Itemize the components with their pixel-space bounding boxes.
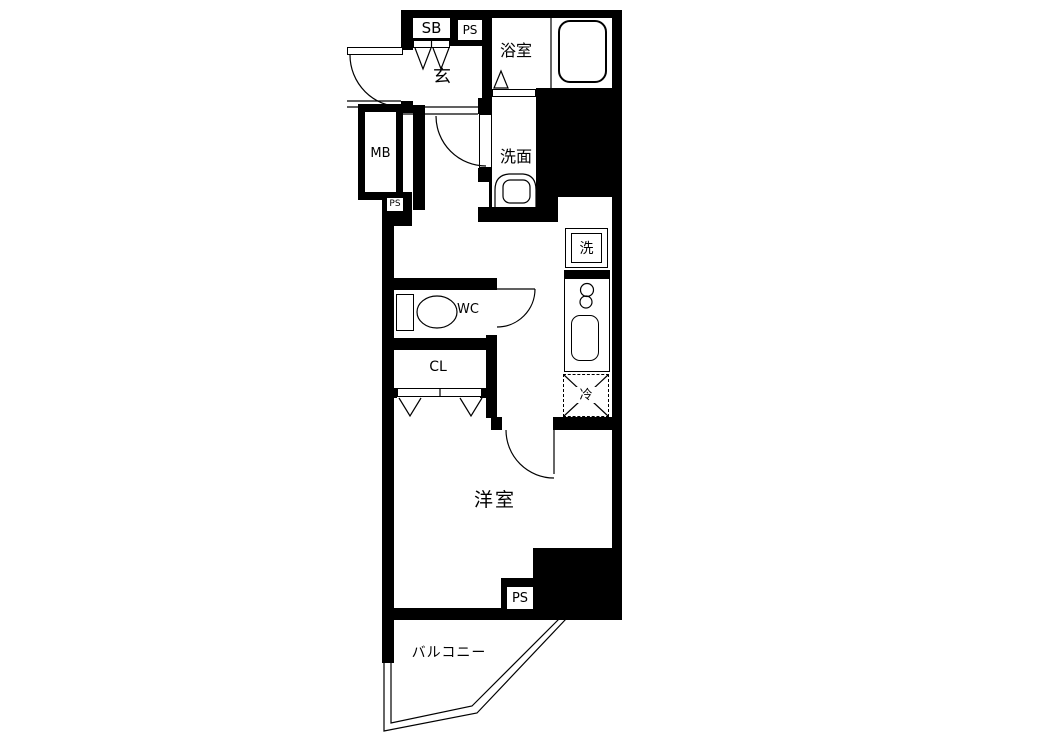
- wall-balcony-stub: [382, 620, 394, 663]
- bathroom-folding-door-icon: [494, 71, 508, 88]
- wall-washroom-south: [478, 207, 550, 222]
- kitchen-sink: [571, 315, 599, 361]
- room-label-wc: WC: [454, 301, 482, 317]
- meter-box-label: MB: [363, 145, 398, 161]
- wall-right: [612, 10, 622, 548]
- bathroom-door-track: [492, 89, 536, 97]
- closet-track-stub-left: [388, 388, 397, 398]
- room-label-closet: CL: [420, 359, 456, 375]
- washing-machine-label: 洗: [566, 240, 607, 258]
- western-room-door-swing-arc: [506, 430, 554, 478]
- closet-door-track: [397, 388, 482, 397]
- wall-corridor-west: [413, 105, 425, 210]
- refrigerator-label: 冷: [576, 387, 596, 403]
- wall-wc-north: [382, 278, 497, 290]
- shoe-box-label: SB: [413, 18, 450, 38]
- pipe-space-middle-label: PS: [387, 198, 403, 211]
- room-label-balcony: バルコニー: [394, 644, 504, 662]
- entry-door-leaf: [347, 47, 403, 55]
- wall-door-side-stub: [491, 417, 502, 430]
- closet-track-stub-right: [480, 388, 497, 398]
- bathtub: [558, 20, 607, 83]
- entry-door-swing-arc: [347, 55, 402, 107]
- room-label-genkan: 玄: [422, 66, 462, 88]
- wall-door-stub-top: [478, 98, 492, 114]
- pipe-space-top-label: PS: [458, 20, 482, 40]
- room-label-bathroom: 浴室: [486, 42, 546, 60]
- wc-door-swing-arc: [497, 289, 535, 327]
- pipe-space-bottom-label: PS: [507, 587, 533, 609]
- wall-washer-south: [564, 270, 610, 278]
- shoe-box-folding-door: [413, 40, 450, 48]
- balcony-outline: [384, 619, 566, 731]
- wall-block-east-of-washroom: [536, 88, 612, 197]
- linework-overlay: [0, 0, 1040, 745]
- wall-bottom: [382, 608, 622, 620]
- toilet-tank: [396, 294, 414, 331]
- floor-plan: SB PS 玄 浴室 MB PS 洗面 洗 WC CL 冷 洋室 PS バルコニ…: [0, 0, 1040, 745]
- toilet-icon: [417, 296, 457, 328]
- room-label-washroom: 洗面: [486, 148, 546, 166]
- wall-kitchen-south: [553, 417, 612, 430]
- wall-wc-south: [382, 338, 497, 350]
- washbasin-icon: [495, 174, 536, 207]
- wall-notch-step1: [533, 548, 622, 580]
- wall-door-stub-bottom: [478, 168, 492, 182]
- room-label-western-room: 洋室: [454, 489, 536, 511]
